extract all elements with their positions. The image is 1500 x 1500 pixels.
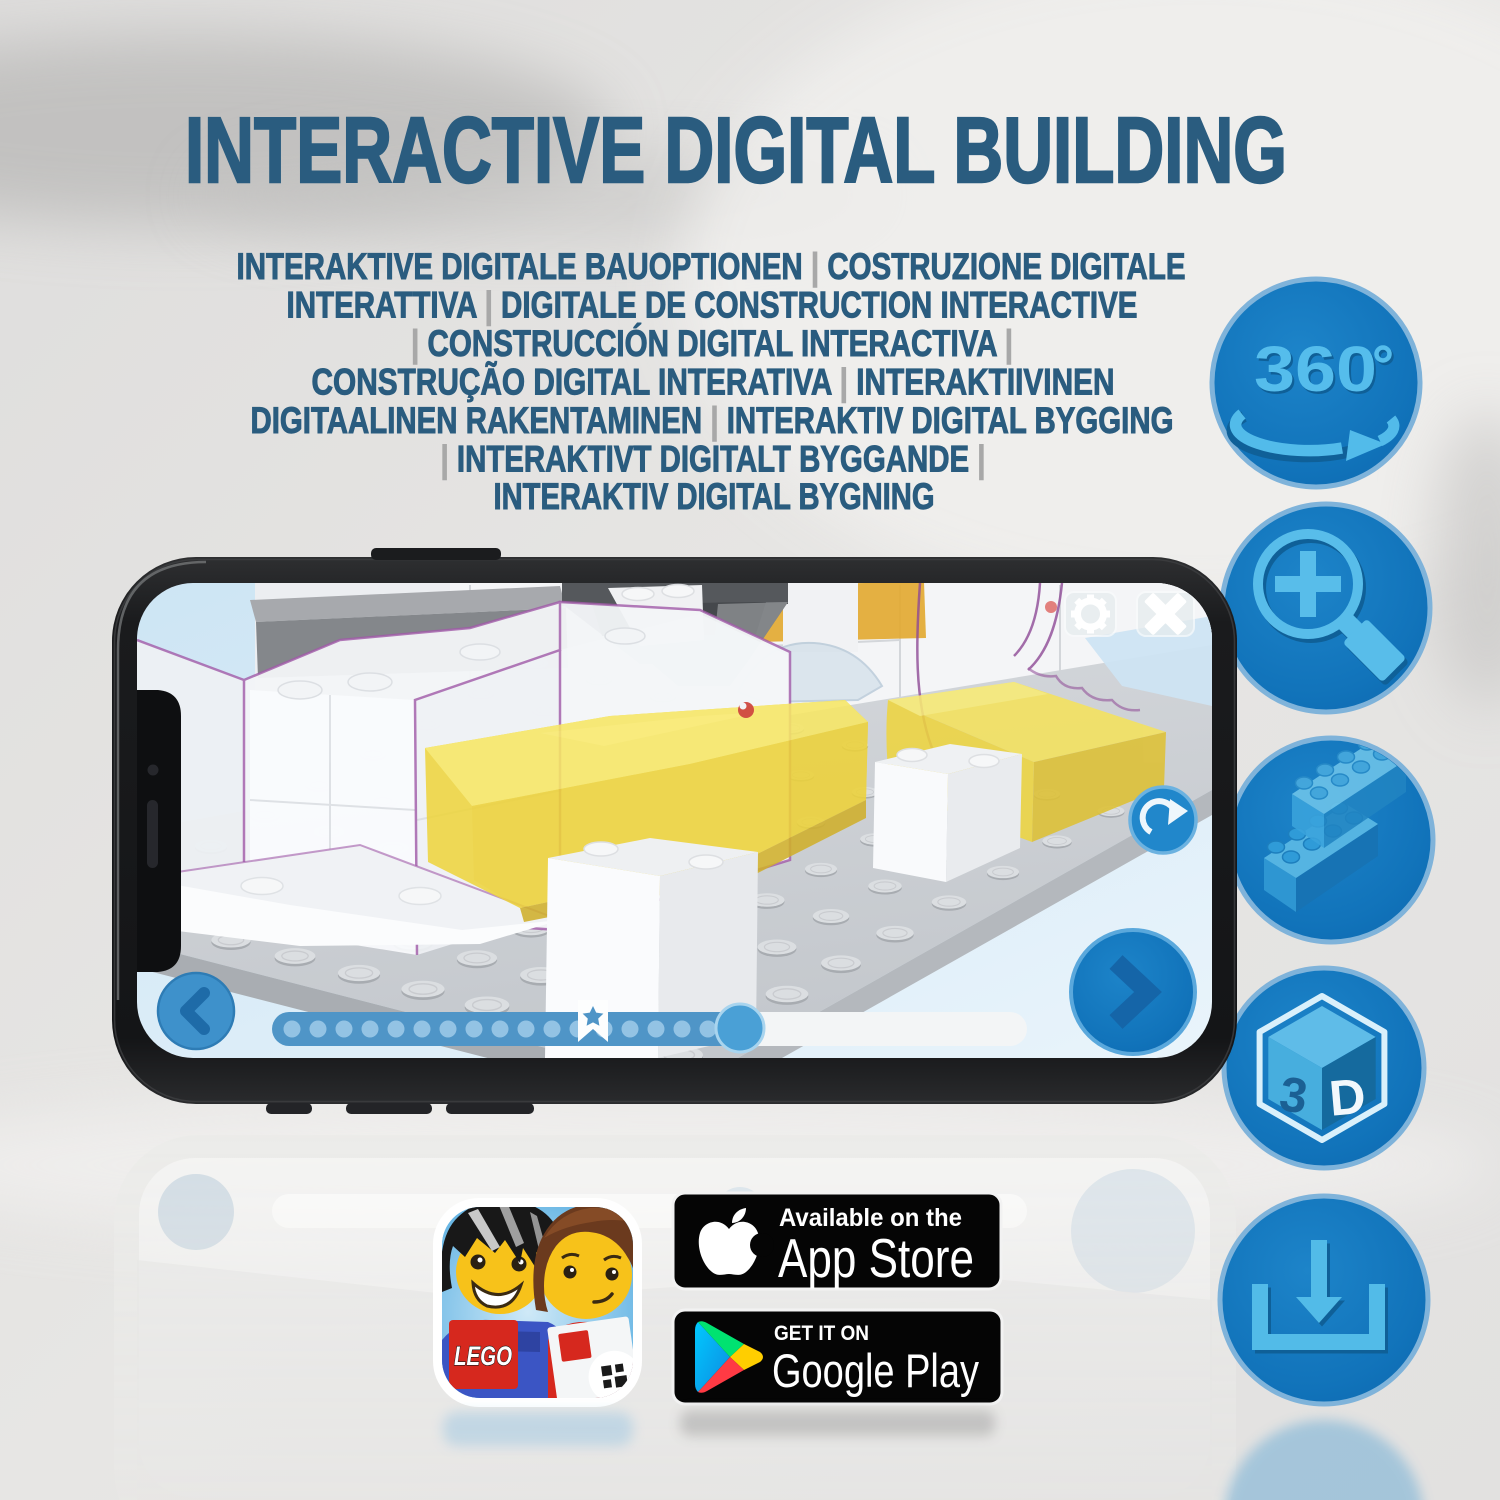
svg-text:DIGITAALINEN RAKENTAMINEN | IN: DIGITAALINEN RAKENTAMINEN | INTERAKTIV D… [251, 400, 1174, 442]
svg-text:App Store: App Store [778, 1227, 974, 1289]
svg-text:| CONSTRUCCIÓN DIGITAL INTERAC: | CONSTRUCCIÓN DIGITAL INTERACTIVA | [411, 322, 1013, 365]
svg-text:Google Play: Google Play [772, 1344, 979, 1397]
svg-text:INTERATTIVA | DIGITALE DE CONS: INTERATTIVA | DIGITALE DE CONSTRUCTION I… [287, 285, 1138, 327]
svg-text:INTERACTIVE DIGITAL BUILDING: INTERACTIVE DIGITAL BUILDING [185, 98, 1287, 202]
svg-text:CONSTRUÇÃO DIGITAL INTERATIVA: CONSTRUÇÃO DIGITAL INTERATIVA | INTERAKT… [312, 361, 1115, 404]
svg-text:360: 360 [1254, 333, 1377, 405]
svg-text:INTERAKTIV DIGITAL BYGNING: INTERAKTIV DIGITAL BYGNING [494, 476, 935, 517]
svg-text:D: D [1327, 1068, 1368, 1127]
svg-text:LEGO: LEGO [454, 1341, 512, 1371]
svg-text:| INTERAKTIVT DIGITALT BYGGAND: | INTERAKTIVT DIGITALT BYGGANDE | [441, 439, 986, 481]
svg-text:GET IT ON: GET IT ON [774, 1322, 869, 1345]
svg-text:INTERAKTIVE DIGITALE BAUOPTION: INTERAKTIVE DIGITALE BAUOPTIONEN | COSTR… [237, 246, 1186, 288]
